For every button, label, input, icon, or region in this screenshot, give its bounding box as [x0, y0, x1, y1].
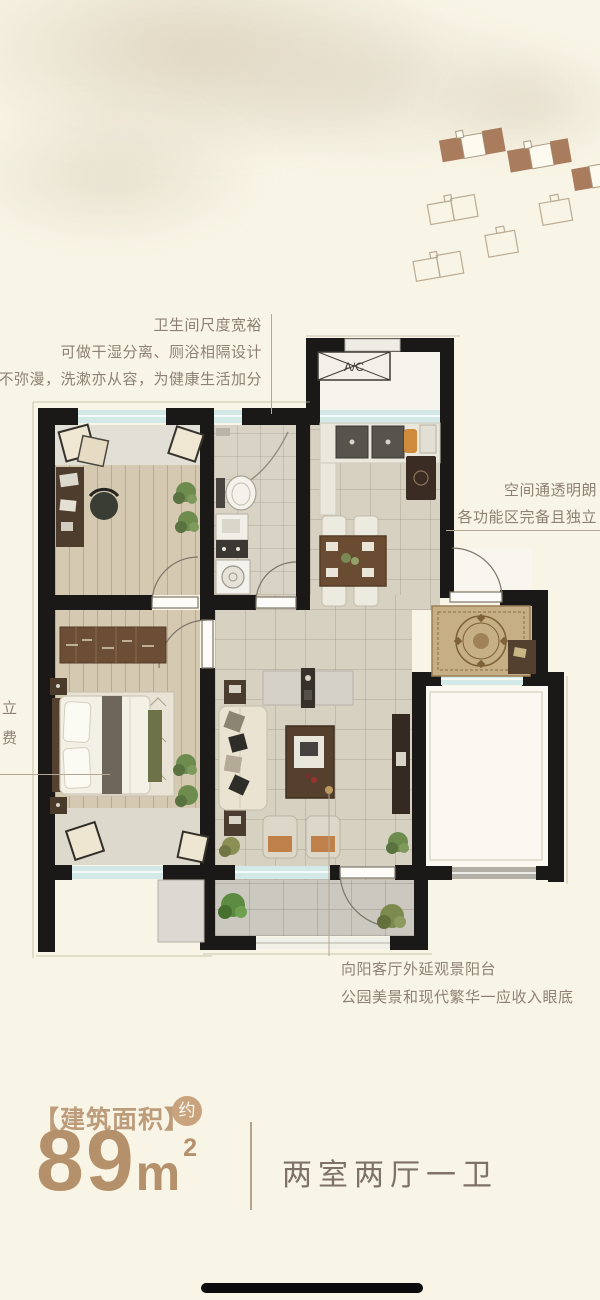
siteplan-footprints [400, 125, 600, 285]
bathroom-annotation: 卫生间尺度宽裕 可做干湿分离、厕浴相隔设计 水汽不弥漫，洗漱亦从容，为健康生活加… [0, 312, 262, 393]
ac-unit-label: A/C [344, 360, 364, 374]
floorplan-linework: A/C [0, 330, 600, 960]
building-footprint [538, 193, 572, 226]
left-annotation-clipped: 立 费 [2, 694, 18, 754]
bedroom-leader-line [0, 774, 110, 775]
area-superscript: 2 [183, 1134, 197, 1162]
ac-platform-north: A/C [318, 352, 390, 380]
area-value: 89m2 [36, 1118, 194, 1204]
bathroom-leader-line [271, 314, 272, 414]
watercolor-blob [0, 0, 450, 160]
empty-room-outline [430, 692, 542, 860]
kitchen [320, 423, 440, 515]
annotation-line: 卫生间尺度宽裕 [0, 312, 262, 339]
annotation-line: 空间通透明朗 [457, 477, 597, 504]
area-number: 89 [36, 1113, 136, 1209]
layout-label: 两室两厅一卫 [282, 1150, 498, 1194]
building-footprint [438, 125, 506, 162]
annotation-line: 可做干湿分离、厕浴相隔设计 [0, 339, 262, 366]
promo-floorplan-page: A/C [0, 0, 600, 1300]
building-footprint [412, 247, 464, 281]
entry-medallion [432, 606, 536, 676]
floor-plan: A/C [0, 330, 600, 960]
master-bedroom [50, 627, 208, 862]
vertical-divider [250, 1122, 252, 1210]
area-unit: m [136, 1145, 180, 1201]
south-balcony [158, 880, 406, 942]
home-indicator[interactable] [201, 1283, 423, 1293]
dining-set [320, 516, 386, 606]
building-footprint [484, 224, 518, 257]
building-footprint [426, 191, 478, 225]
space-annotation: 空间通透明朗 各功能区完备且独立 [457, 477, 597, 531]
annotation-line: 水汽不弥漫，洗漱亦从容，为健康生活加分 [0, 366, 262, 393]
balcony-annotation: 向阳客厅外延观景阳台 公园美景和现代繁华一应收入眼底 [341, 956, 574, 1012]
annotation-line: 立 [2, 694, 18, 724]
living-room [219, 668, 410, 858]
annotation-line: 公园美景和现代繁华一应收入眼底 [341, 984, 574, 1012]
bathroom [216, 428, 288, 594]
building-footprint [571, 163, 600, 191]
annotation-line: 向阳客厅外延观景阳台 [341, 956, 574, 984]
building-footprint [506, 134, 572, 172]
study-room [56, 425, 204, 547]
watercolor-blob [0, 100, 270, 250]
annotation-line: 费 [2, 724, 18, 754]
annotation-line: 各功能区完备且独立 [457, 504, 597, 531]
space-leader-line [446, 530, 600, 531]
